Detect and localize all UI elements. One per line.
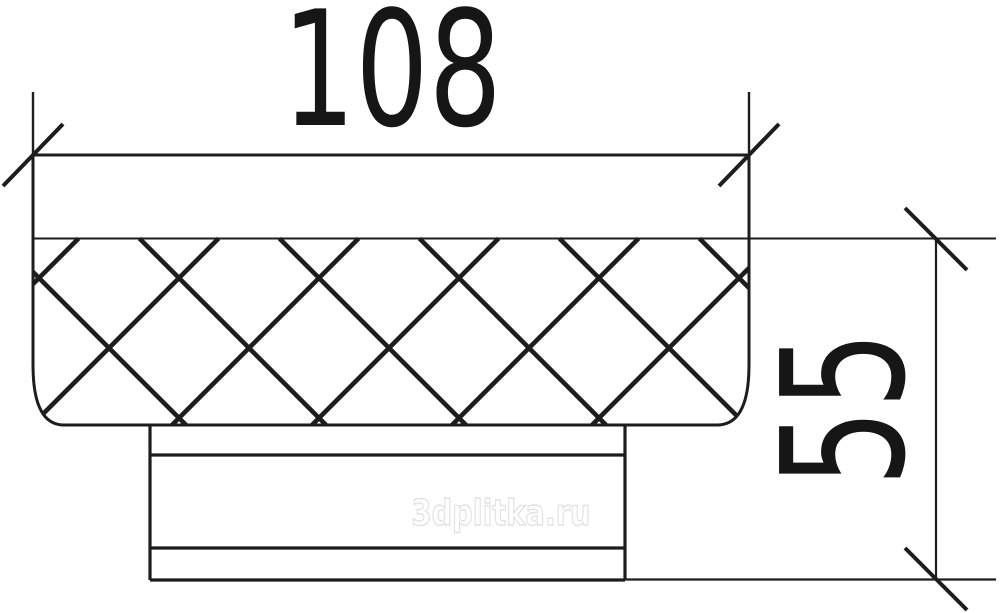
hatch-line xyxy=(452,239,639,426)
height-dimension-value: 55 xyxy=(746,331,943,487)
hatch-line xyxy=(0,239,79,426)
hatch-line xyxy=(172,239,359,426)
dimension-labels: 108 55 xyxy=(282,0,943,487)
technical-drawing-canvas: 108 55 3dplitka.ru xyxy=(0,0,1000,613)
hatch-line xyxy=(140,239,327,426)
watermark-text: 3dplitka.ru xyxy=(412,492,591,534)
hatch-line xyxy=(0,239,46,426)
hatch-line xyxy=(420,239,607,426)
hatch-line xyxy=(0,239,186,426)
width-dimension-value: 108 xyxy=(282,0,502,163)
hatch-line xyxy=(32,239,219,426)
hatch-line xyxy=(312,239,499,426)
knob-outline xyxy=(33,155,749,425)
hatch-line xyxy=(280,239,467,426)
hatch-line xyxy=(560,239,747,426)
technical-drawing-page: 108 55 3dplitka.ru xyxy=(0,0,1000,613)
